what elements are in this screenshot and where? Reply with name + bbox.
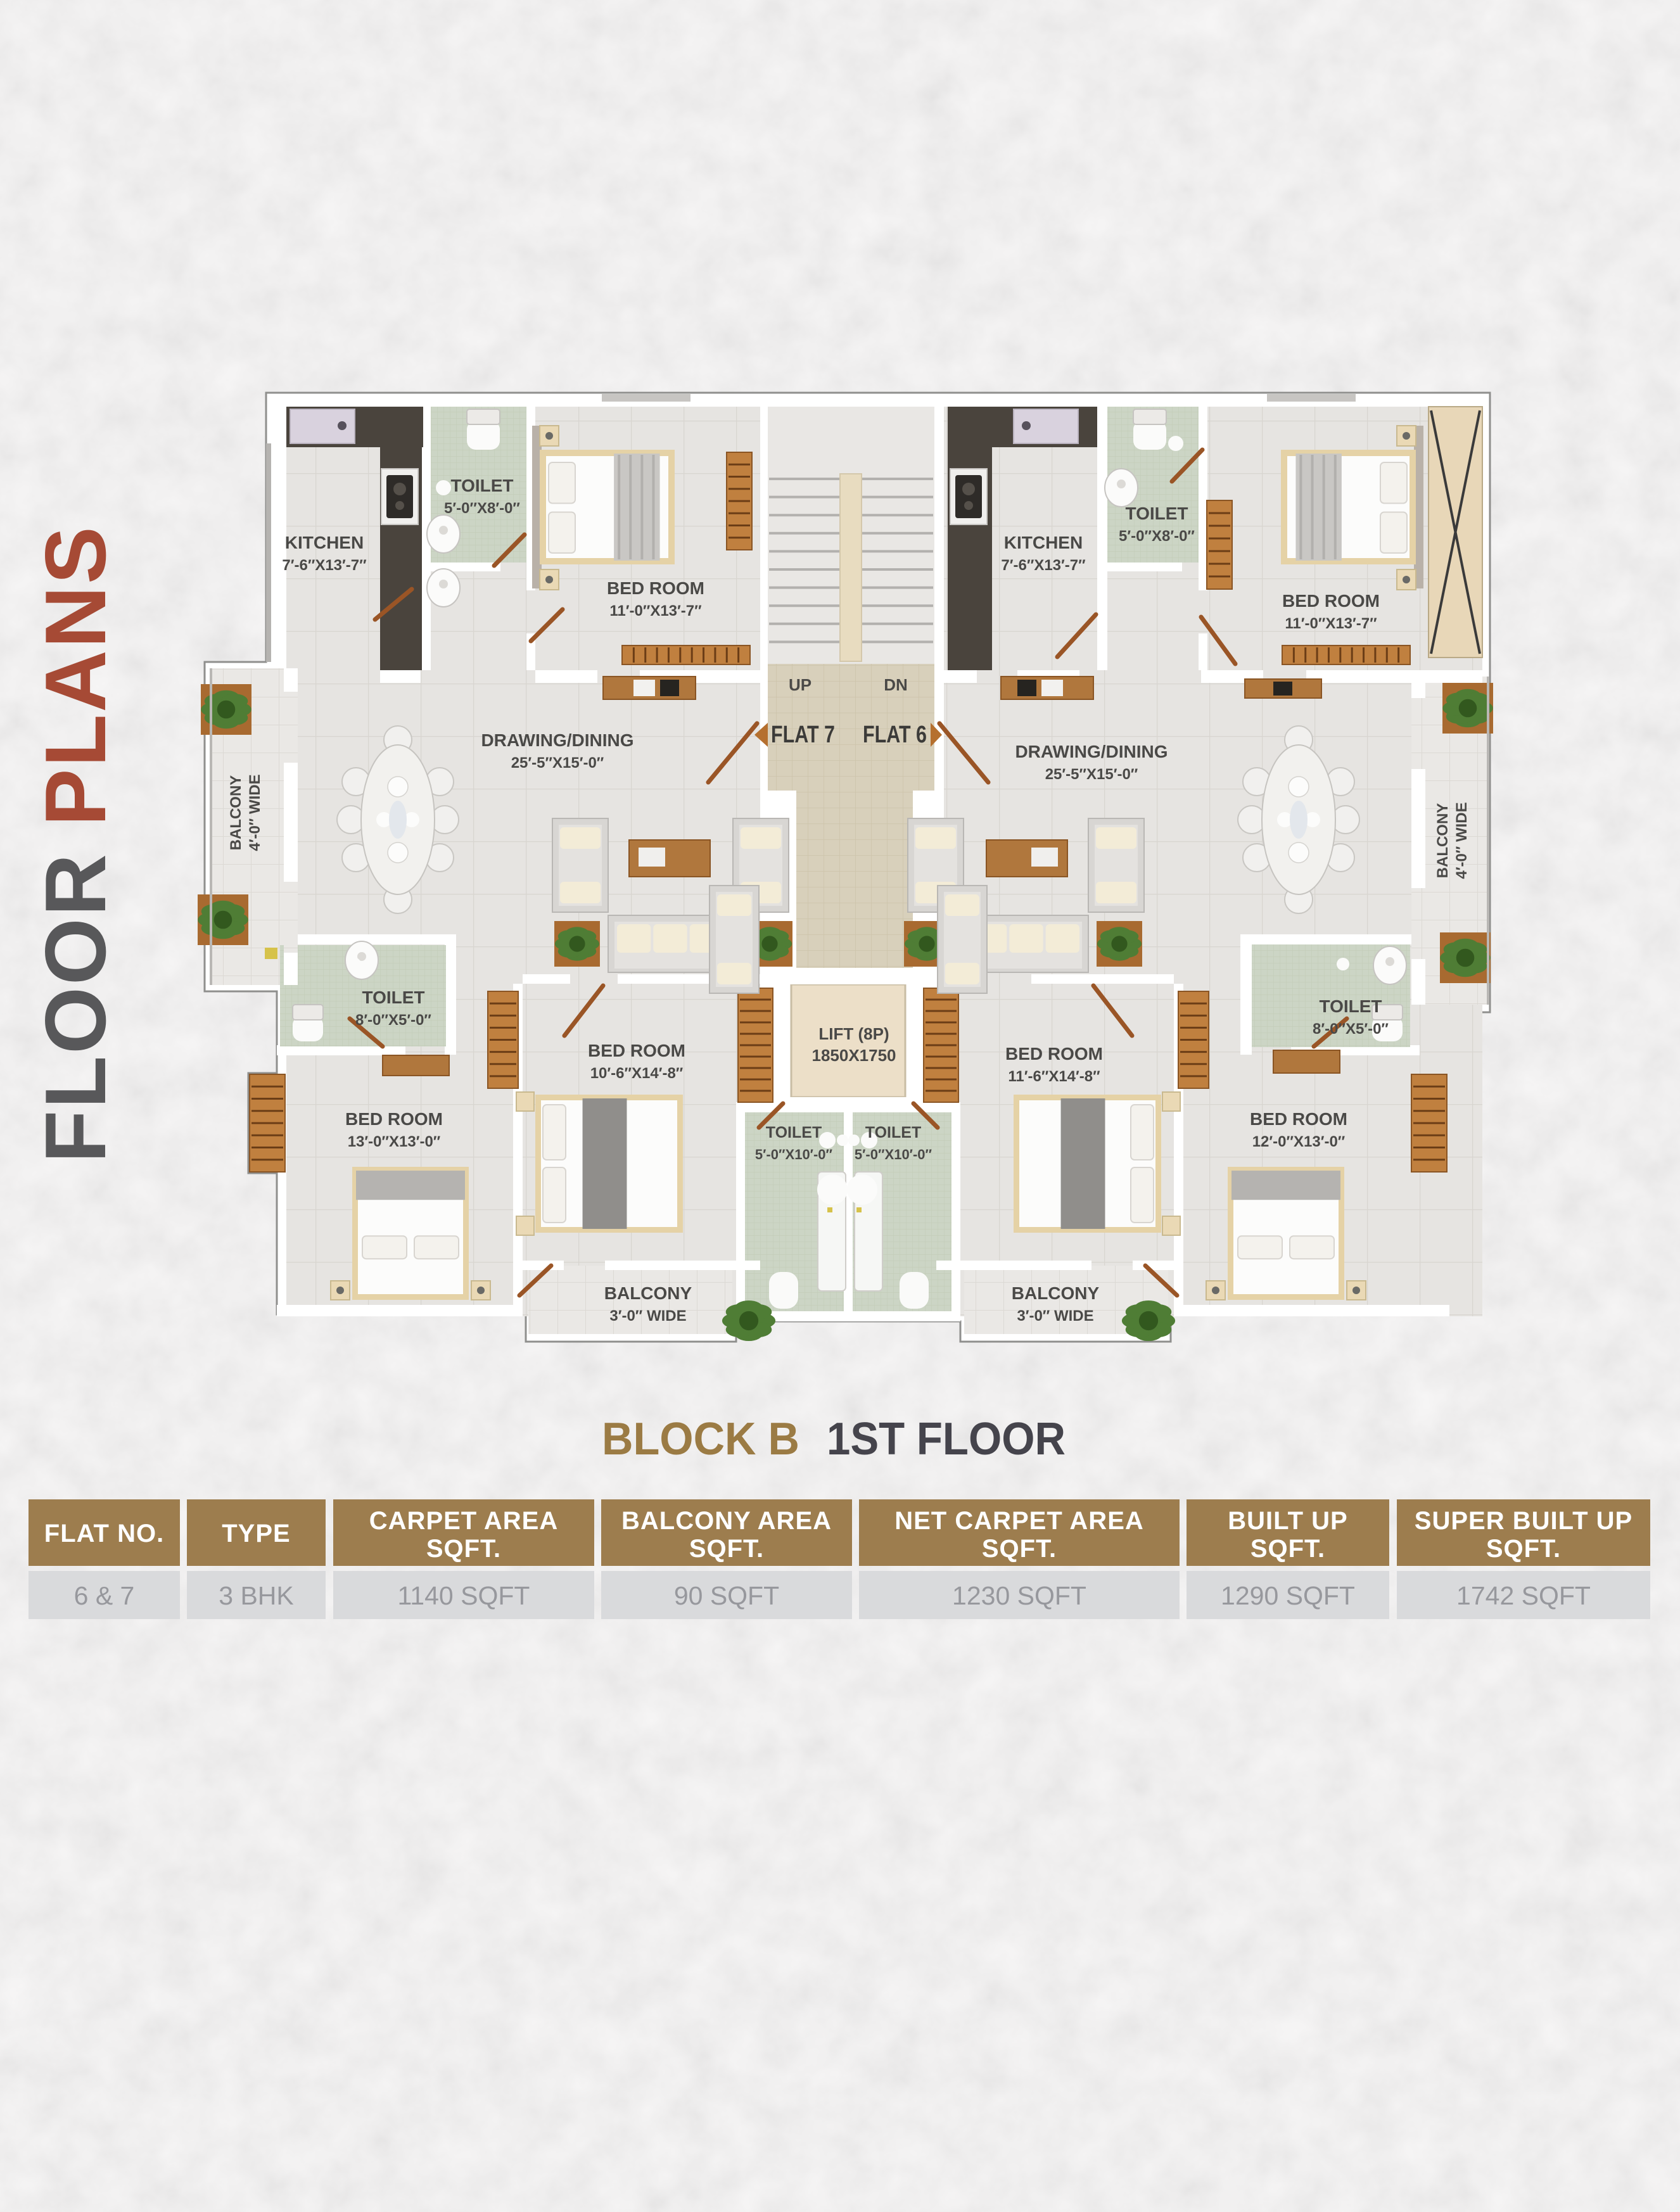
- svg-text:TOILET: TOILET: [1125, 504, 1188, 523]
- svg-text:8′-0″X5′-0″: 8′-0″X5′-0″: [1313, 1020, 1389, 1038]
- svg-text:CARPET AREA: CARPET AREA: [369, 1507, 558, 1535]
- svg-text:11′-0″X13′-7″: 11′-0″X13′-7″: [1285, 615, 1377, 632]
- svg-text:8′-0″X5′-0″: 8′-0″X5′-0″: [355, 1012, 431, 1029]
- svg-text:3 BHK: 3 BHK: [219, 1581, 294, 1610]
- svg-text:25′-5″X15′-0″: 25′-5″X15′-0″: [511, 754, 604, 772]
- svg-text:1230 SQFT: 1230 SQFT: [952, 1581, 1086, 1610]
- svg-text:UP: UP: [789, 675, 811, 694]
- svg-text:LIFT (8P): LIFT (8P): [818, 1024, 889, 1043]
- svg-text:5′-0″X8′-0″: 5′-0″X8′-0″: [1119, 528, 1195, 545]
- svg-text:FLOOR PLANS: FLOOR PLANS: [27, 524, 124, 1163]
- svg-text:3′-0″ WIDE: 3′-0″ WIDE: [1017, 1307, 1093, 1325]
- svg-text:TOILET: TOILET: [1319, 996, 1382, 1016]
- svg-text:12′-0″X13′-0″: 12′-0″X13′-0″: [1252, 1133, 1346, 1150]
- svg-text:5′-0″X8′-0″: 5′-0″X8′-0″: [444, 500, 520, 517]
- svg-text:BED ROOM: BED ROOM: [345, 1109, 443, 1129]
- svg-text:DRAWING/DINING: DRAWING/DINING: [1015, 742, 1168, 761]
- svg-text:SQFT.: SQFT.: [1486, 1535, 1561, 1563]
- svg-text:FLAT 7: FLAT 7: [771, 721, 835, 748]
- svg-text:FLAT NO.: FLAT NO.: [44, 1520, 164, 1548]
- svg-text:3′-0″ WIDE: 3′-0″ WIDE: [609, 1307, 686, 1325]
- svg-text:DRAWING/DINING: DRAWING/DINING: [481, 730, 633, 750]
- svg-text:KITCHEN: KITCHEN: [285, 533, 364, 552]
- svg-text:BED ROOM: BED ROOM: [1250, 1109, 1347, 1129]
- svg-text:1850X1750: 1850X1750: [811, 1046, 896, 1065]
- svg-text:1742 SQFT: 1742 SQFT: [1456, 1581, 1591, 1610]
- svg-text:BLOCK B: BLOCK B: [602, 1414, 799, 1465]
- svg-text:13′-0″X13′-0″: 13′-0″X13′-0″: [348, 1133, 441, 1150]
- svg-text:10′-6″X14′-8″: 10′-6″X14′-8″: [590, 1065, 684, 1082]
- svg-text:5′-0″X10′-0″: 5′-0″X10′-0″: [755, 1147, 833, 1162]
- svg-text:BALCONY: BALCONY: [604, 1283, 692, 1303]
- svg-text:TYPE: TYPE: [222, 1520, 290, 1548]
- svg-text:SQFT.: SQFT.: [982, 1535, 1057, 1563]
- svg-text:SUPER BUILT UP: SUPER BUILT UP: [1415, 1507, 1632, 1535]
- svg-text:TOILET: TOILET: [766, 1124, 822, 1141]
- svg-text:BED ROOM: BED ROOM: [1005, 1044, 1103, 1064]
- svg-text:BALCONY: BALCONY: [227, 775, 245, 851]
- svg-text:1ST FLOOR: 1ST FLOOR: [827, 1414, 1066, 1465]
- svg-text:DN: DN: [884, 675, 908, 694]
- svg-text:TOILET: TOILET: [362, 988, 424, 1007]
- svg-text:90 SQFT: 90 SQFT: [674, 1581, 779, 1610]
- svg-text:SQFT.: SQFT.: [1250, 1535, 1325, 1563]
- svg-text:6 & 7: 6 & 7: [74, 1581, 135, 1610]
- svg-text:7′-6″X13′-7″: 7′-6″X13′-7″: [1001, 557, 1086, 574]
- svg-text:5′-0″X10′-0″: 5′-0″X10′-0″: [855, 1147, 932, 1162]
- svg-text:1140 SQFT: 1140 SQFT: [398, 1581, 530, 1610]
- svg-text:BED ROOM: BED ROOM: [607, 578, 704, 598]
- svg-text:TOILET: TOILET: [450, 476, 513, 495]
- svg-text:7′-6″X13′-7″: 7′-6″X13′-7″: [282, 557, 367, 574]
- svg-text:BUILT UP: BUILT UP: [1228, 1507, 1347, 1535]
- svg-text:BALCONY: BALCONY: [1434, 803, 1451, 879]
- svg-text:KITCHEN: KITCHEN: [1004, 533, 1083, 552]
- svg-text:11′-0″X13′-7″: 11′-0″X13′-7″: [609, 602, 702, 620]
- svg-text:SQFT.: SQFT.: [426, 1535, 501, 1563]
- svg-text:NET CARPET AREA: NET CARPET AREA: [894, 1507, 1144, 1535]
- svg-text:1290 SQFT: 1290 SQFT: [1221, 1581, 1355, 1610]
- svg-text:BALCONY AREA: BALCONY AREA: [621, 1507, 832, 1535]
- svg-text:BED ROOM: BED ROOM: [588, 1041, 685, 1060]
- svg-text:BALCONY: BALCONY: [1012, 1283, 1100, 1303]
- svg-text:BED ROOM: BED ROOM: [1282, 591, 1380, 611]
- svg-text:4′-0″ WIDE: 4′-0″ WIDE: [246, 774, 264, 851]
- svg-text:FLAT 6: FLAT 6: [863, 721, 927, 748]
- svg-text:4′-0″ WIDE: 4′-0″ WIDE: [1453, 802, 1470, 879]
- svg-text:TOILET: TOILET: [865, 1124, 921, 1141]
- svg-text:SQFT.: SQFT.: [689, 1535, 764, 1563]
- svg-text:11′-6″X14′-8″: 11′-6″X14′-8″: [1008, 1068, 1100, 1085]
- svg-text:25′-5″X15′-0″: 25′-5″X15′-0″: [1045, 766, 1138, 783]
